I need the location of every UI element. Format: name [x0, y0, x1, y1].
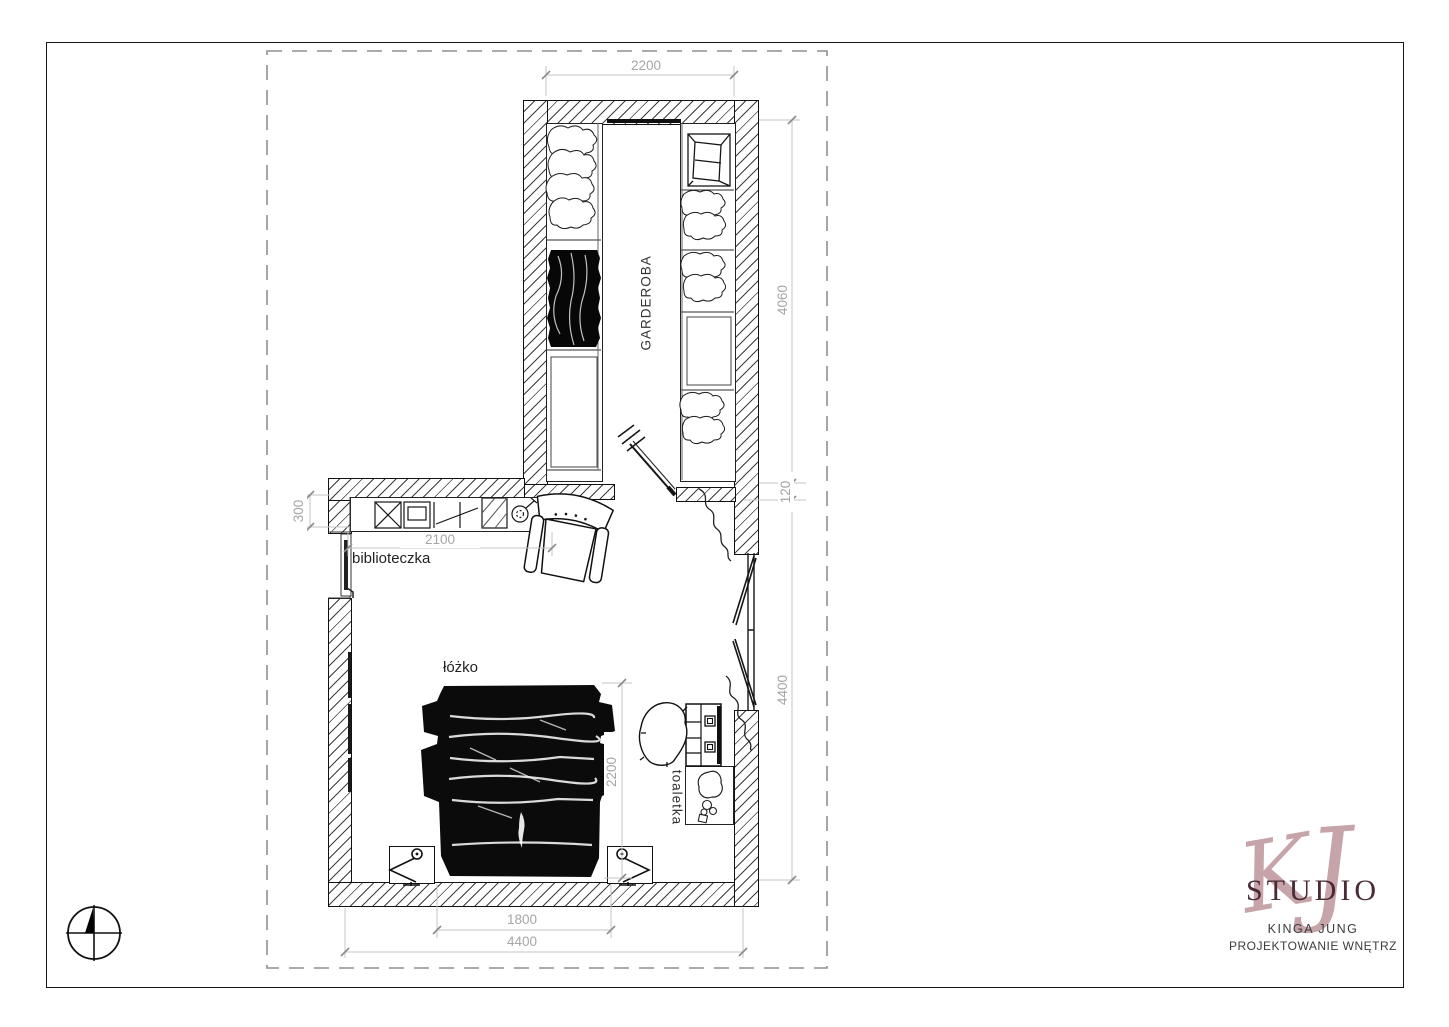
dim-bookcase-run: 2100 [400, 532, 480, 548]
room-label-wardrobe: GARDEROBA [639, 261, 654, 351]
nightstand-left [389, 846, 435, 884]
dim-partition-thickness: 120 [778, 472, 794, 512]
dim-bed-width: 1800 [484, 912, 560, 928]
dim-bedroom-length: 4400 [775, 650, 791, 730]
furniture-label-vanity: toaletka [670, 757, 685, 839]
dim-bed-length: 2200 [604, 732, 620, 812]
dim-bookcase-depth: 300 [291, 482, 307, 540]
floor-plan-sheet: GARDEROBA biblioteczka łóżko toaletka 22… [0, 0, 1449, 1027]
wall-bedroom-left-lower [328, 598, 352, 907]
logo-monogram-j: J [1304, 813, 1357, 928]
nightstand-right [607, 846, 653, 884]
dim-wardrobe-width: 2200 [606, 58, 686, 74]
wall-wardrobe-left [523, 100, 548, 492]
bookcase-cabinet-row [350, 497, 540, 532]
wardrobe-closet-left [546, 123, 603, 482]
studio-logo: K J STUDIO KINGA JUNG PROJEKTOWANIE WNĘT… [1238, 812, 1388, 962]
wall-bedroom-bottom [328, 882, 759, 907]
dim-bedroom-width: 4400 [484, 934, 560, 950]
wall-wardrobe-top [523, 100, 759, 125]
wardrobe-closet-right [680, 123, 736, 482]
wall-partition-right [676, 487, 736, 502]
wall-right-upper [734, 100, 759, 555]
furniture-label-bed: łóżko [443, 659, 478, 676]
dim-wardrobe-length: 4060 [775, 260, 791, 340]
wall-right-lower [734, 710, 759, 907]
furniture-label-bookcase: biblioteczka [352, 550, 430, 567]
logo-studio-text: STUDIO [1238, 874, 1388, 908]
vanity-table [685, 766, 734, 825]
logo-tagline: PROJEKTOWANIE WNĘTRZ [1228, 939, 1398, 953]
logo-designer-name: KINGA JUNG [1238, 922, 1388, 936]
wall-bedroom-left-upper [328, 500, 352, 534]
